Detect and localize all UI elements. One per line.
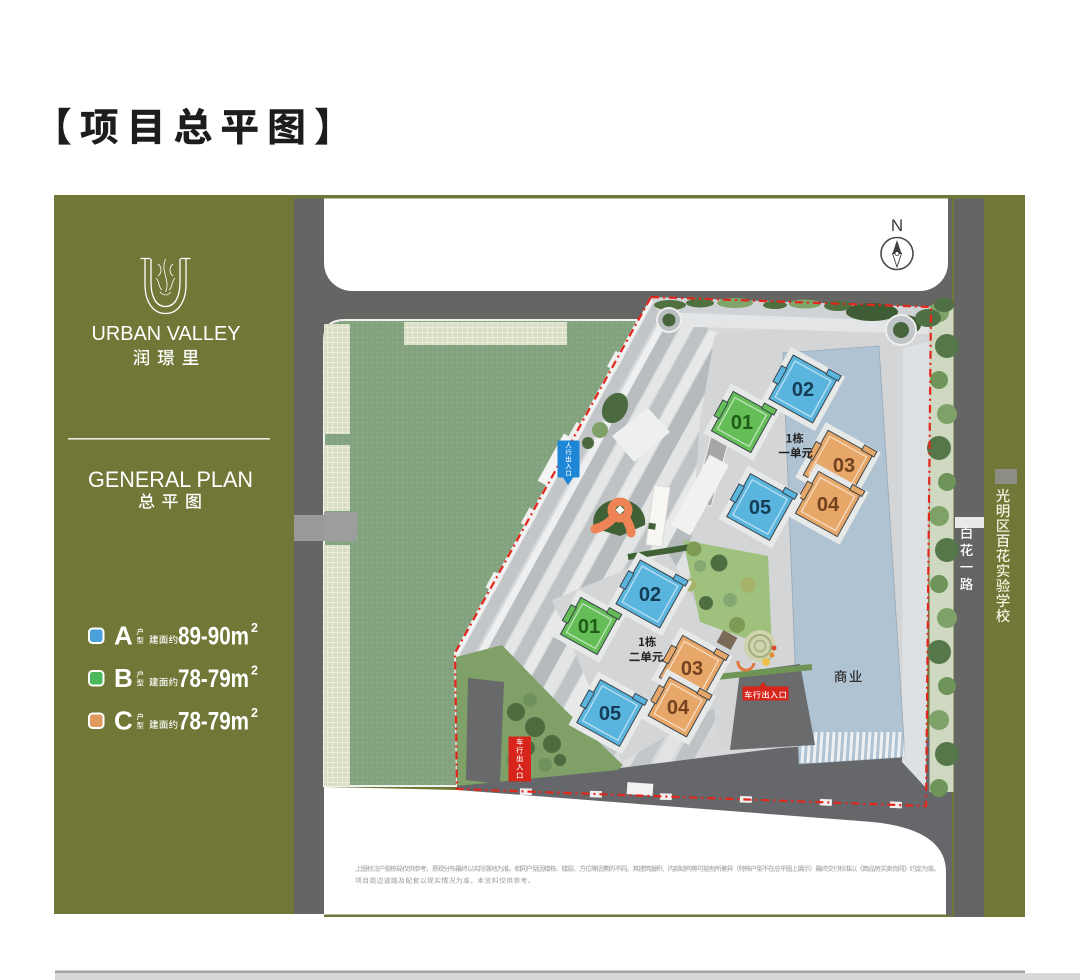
svg-text:01: 01: [578, 616, 600, 638]
svg-text:78-79m: 78-79m: [178, 665, 249, 693]
svg-text:04: 04: [817, 494, 840, 516]
svg-text:02: 02: [792, 379, 814, 401]
svg-text:02: 02: [639, 584, 661, 606]
svg-text:78-79m: 78-79m: [178, 708, 249, 736]
svg-text:2: 2: [251, 706, 258, 720]
svg-text:03: 03: [681, 658, 703, 680]
svg-text:A: A: [114, 621, 133, 651]
svg-text:2: 2: [251, 664, 258, 678]
svg-text:04: 04: [667, 697, 690, 719]
svg-text:05: 05: [599, 703, 621, 725]
svg-text:05: 05: [749, 497, 771, 519]
svg-text:GENERAL PLAN: GENERAL PLAN: [88, 467, 253, 492]
svg-text:2: 2: [251, 621, 258, 635]
svg-text:C: C: [114, 706, 133, 736]
svg-text:URBAN VALLEY: URBAN VALLEY: [92, 323, 241, 345]
svg-text:01: 01: [731, 412, 753, 434]
svg-text:89-90m: 89-90m: [178, 623, 249, 651]
svg-text:N: N: [891, 216, 903, 235]
svg-text:B: B: [114, 663, 133, 693]
svg-text:03: 03: [833, 455, 855, 477]
